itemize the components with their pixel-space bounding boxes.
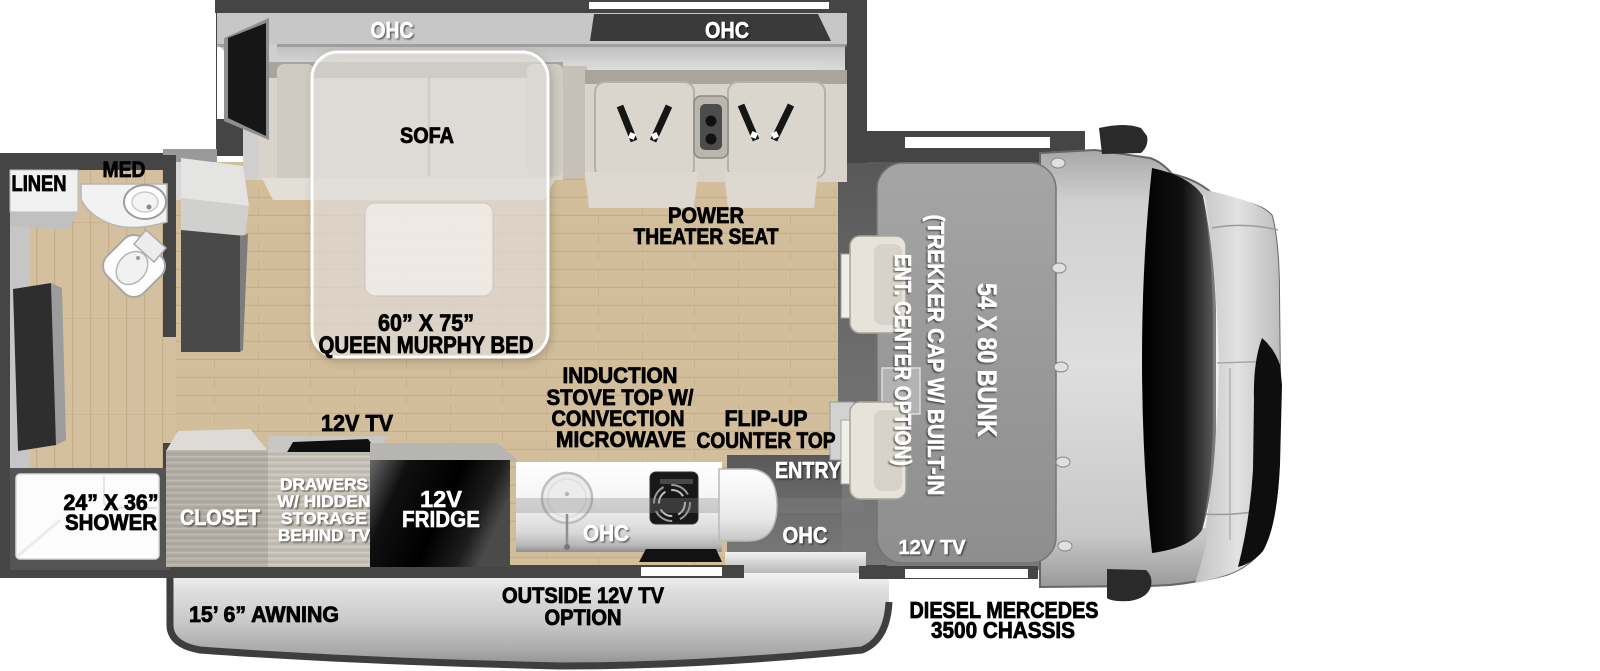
svg-text:FRIDGE: FRIDGE <box>402 506 480 532</box>
svg-text:QUEEN MURPHY BED: QUEEN MURPHY BED <box>319 332 534 359</box>
svg-text:54 X 80 BUNK: 54 X 80 BUNK <box>972 283 1002 437</box>
svg-text:MED: MED <box>103 157 146 182</box>
svg-text:12V TV: 12V TV <box>899 537 967 559</box>
svg-text:ENT. CENTER OPTION): ENT. CENTER OPTION) <box>890 254 916 466</box>
svg-text:BEHIND TV: BEHIND TV <box>278 526 371 545</box>
svg-text:CLOSET: CLOSET <box>180 505 260 530</box>
svg-text:THEATER SEAT: THEATER SEAT <box>634 224 779 249</box>
svg-text:SOFA: SOFA <box>400 123 454 148</box>
svg-text:12V TV: 12V TV <box>321 410 394 436</box>
svg-text:LINEN: LINEN <box>12 171 67 196</box>
svg-text:SHOWER: SHOWER <box>65 510 157 535</box>
svg-text:OHC: OHC <box>705 17 749 43</box>
svg-text:3500 CHASSIS: 3500 CHASSIS <box>931 617 1075 643</box>
svg-text:OHC: OHC <box>583 520 629 546</box>
svg-text:OHC: OHC <box>371 17 414 43</box>
svg-text:OHC: OHC <box>783 522 828 548</box>
svg-text:OPTION: OPTION <box>545 605 622 630</box>
svg-text:MICROWAVE: MICROWAVE <box>556 427 686 452</box>
svg-text:ENTRY: ENTRY <box>775 457 841 483</box>
svg-text:(TREKKER CAP W/ BUILT-IN: (TREKKER CAP W/ BUILT-IN <box>923 215 949 496</box>
svg-text:15’ 6” AWNING: 15’ 6” AWNING <box>189 602 339 627</box>
svg-text:COUNTER TOP: COUNTER TOP <box>697 428 836 453</box>
